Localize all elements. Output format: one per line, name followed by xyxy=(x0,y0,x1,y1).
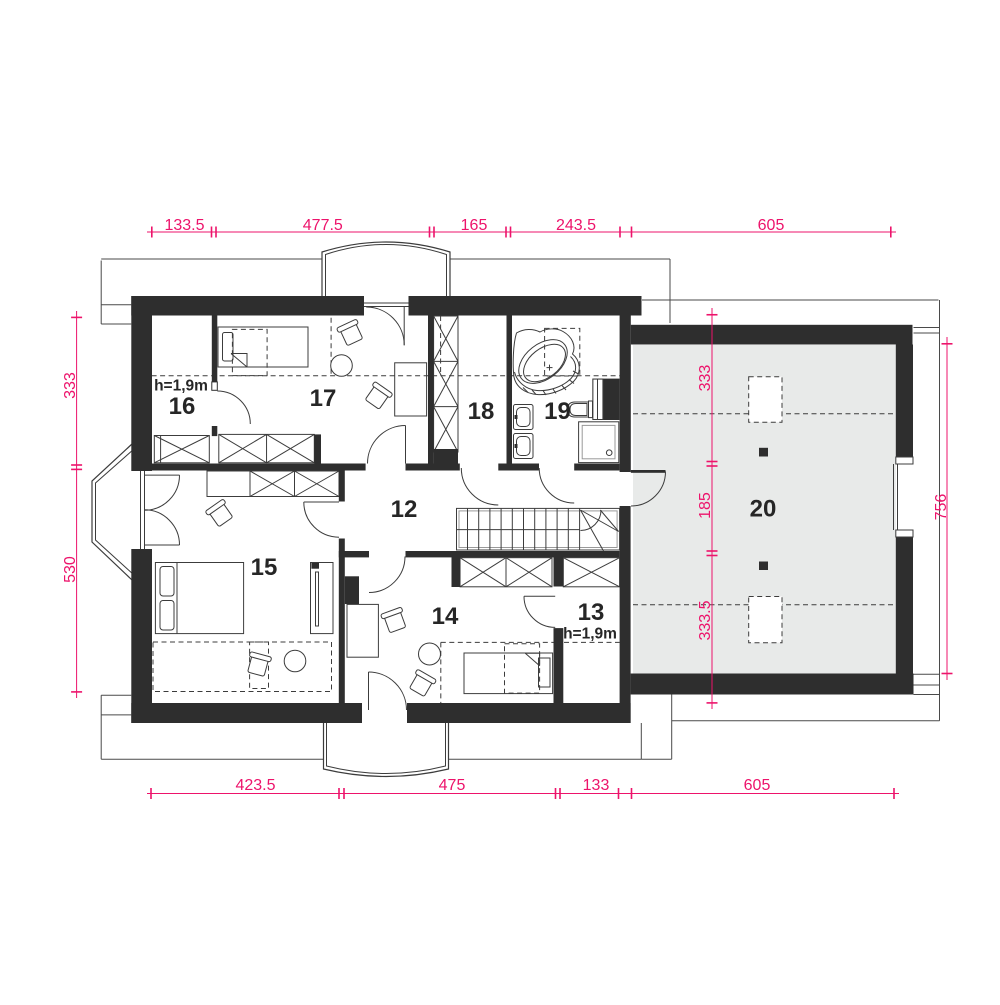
svg-text:605: 605 xyxy=(758,217,785,234)
svg-text:185: 185 xyxy=(697,492,714,519)
svg-text:h=1,9m: h=1,9m xyxy=(154,378,208,395)
svg-text:477.5: 477.5 xyxy=(303,217,343,234)
svg-text:19: 19 xyxy=(544,398,571,425)
svg-text:13: 13 xyxy=(578,599,605,626)
svg-text:18: 18 xyxy=(468,398,495,425)
svg-text:605: 605 xyxy=(744,777,771,794)
svg-text:530: 530 xyxy=(62,556,79,583)
svg-text:333: 333 xyxy=(697,365,714,392)
svg-text:17: 17 xyxy=(310,385,337,412)
svg-text:333.5: 333.5 xyxy=(697,600,714,640)
svg-text:14: 14 xyxy=(432,603,459,630)
svg-text:133.5: 133.5 xyxy=(164,217,204,234)
svg-text:133: 133 xyxy=(583,777,610,794)
svg-text:20: 20 xyxy=(750,496,777,523)
svg-text:165: 165 xyxy=(461,217,488,234)
svg-text:16: 16 xyxy=(169,393,196,420)
svg-text:475: 475 xyxy=(439,777,466,794)
svg-text:15: 15 xyxy=(251,554,278,581)
svg-text:756: 756 xyxy=(933,494,950,521)
svg-text:h=1,9m: h=1,9m xyxy=(563,626,617,643)
svg-text:333: 333 xyxy=(62,372,79,399)
svg-text:423.5: 423.5 xyxy=(235,777,275,794)
svg-text:12: 12 xyxy=(391,496,418,523)
svg-text:243.5: 243.5 xyxy=(556,217,596,234)
